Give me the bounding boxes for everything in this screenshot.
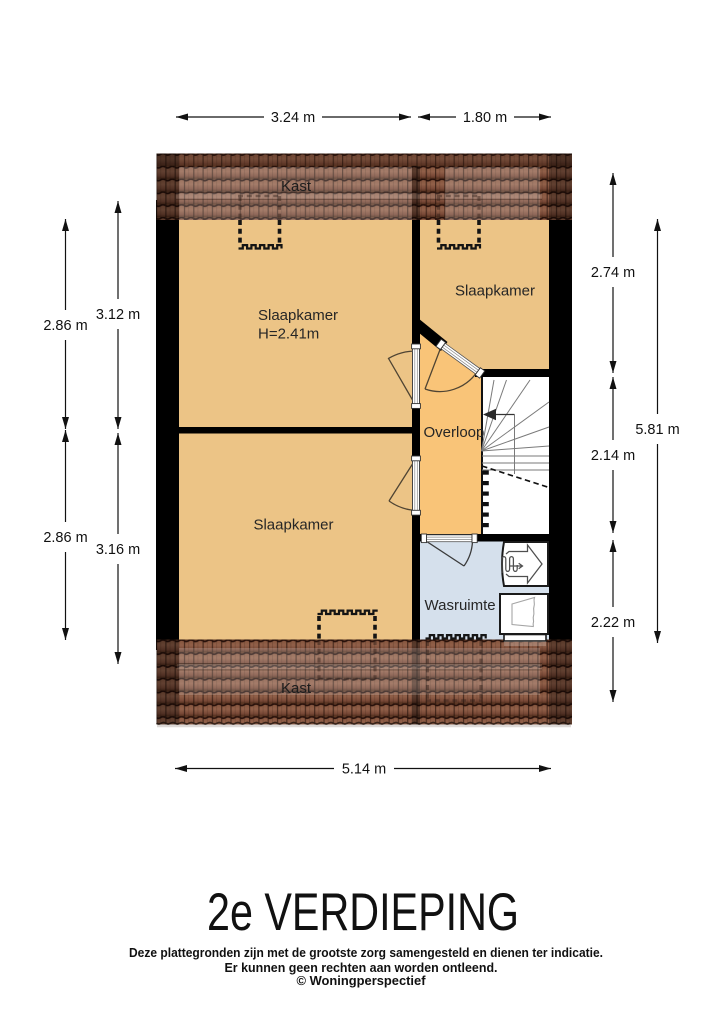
svg-text:2.22 m: 2.22 m <box>591 615 635 631</box>
svg-text:1.80 m: 1.80 m <box>463 110 507 126</box>
svg-text:Slaapkamer: Slaapkamer <box>258 307 338 324</box>
svg-text:Kast: Kast <box>281 680 312 697</box>
svg-text:3.16 m: 3.16 m <box>96 542 140 558</box>
svg-text:2.86 m: 2.86 m <box>43 530 87 546</box>
svg-text:Overloop: Overloop <box>424 424 485 441</box>
svg-text:2.14 m: 2.14 m <box>591 448 635 464</box>
svg-text:Wasruimte: Wasruimte <box>425 597 496 614</box>
svg-text:2.86 m: 2.86 m <box>43 318 87 334</box>
svg-text:3.24 m: 3.24 m <box>271 110 315 126</box>
svg-text:3.12 m: 3.12 m <box>96 307 140 323</box>
svg-text:5.14 m: 5.14 m <box>342 762 386 778</box>
svg-text:Slaapkamer: Slaapkamer <box>455 283 535 300</box>
svg-text:Kast: Kast <box>281 178 312 195</box>
svg-text:5.81 m: 5.81 m <box>635 422 679 438</box>
svg-text:2.74 m: 2.74 m <box>591 265 635 281</box>
svg-text:2e VERDIEPING: 2e VERDIEPING <box>207 883 519 942</box>
svg-text:© Woningperspectief: © Woningperspectief <box>297 973 427 988</box>
svg-text:Deze plattegronden zijn met de: Deze plattegronden zijn met de grootste … <box>129 945 603 960</box>
svg-text:H=2.41m: H=2.41m <box>258 326 319 343</box>
svg-text:Slaapkamer: Slaapkamer <box>253 517 333 534</box>
